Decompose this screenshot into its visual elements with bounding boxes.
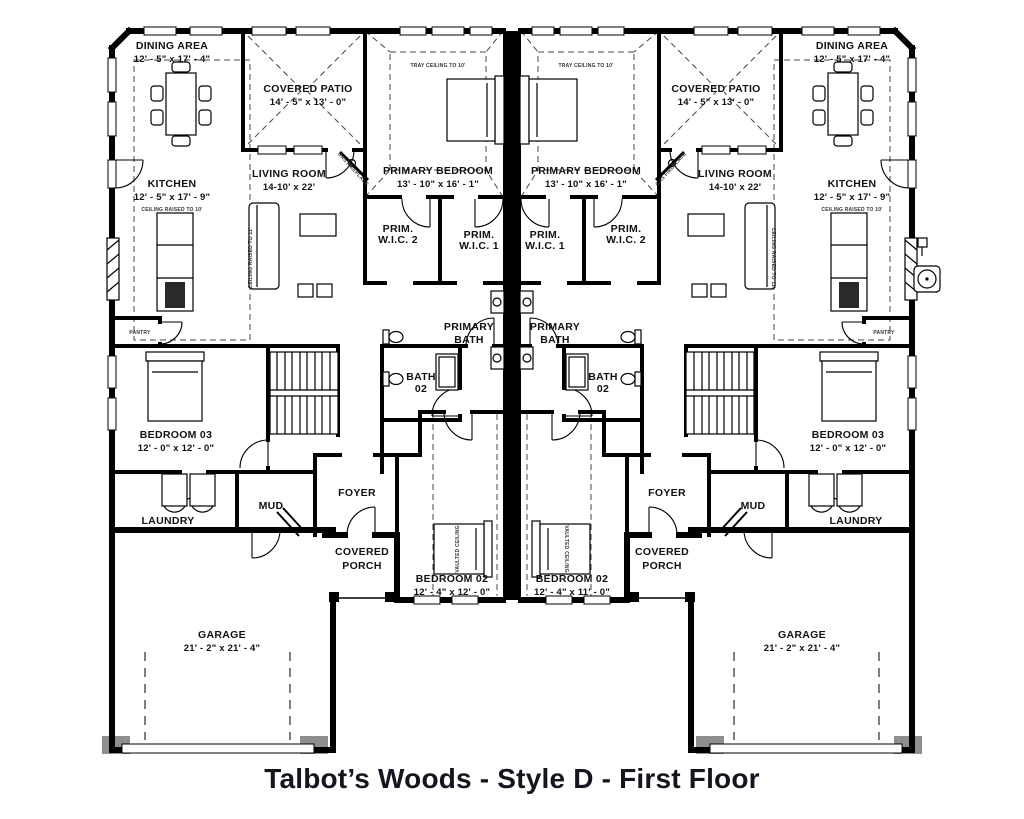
label-dining-name: DINING AREA xyxy=(816,40,888,52)
utility-meter-icon xyxy=(914,238,940,292)
label-dining-dims: 12' - 5" x 17' - 4" xyxy=(814,54,890,65)
label-living-name: LIVING ROOM xyxy=(698,168,772,180)
label-wic2-l2: W.I.C. 2 xyxy=(378,234,418,246)
dining-table-set xyxy=(151,62,211,146)
label-garage-name: GARAGE xyxy=(778,629,826,641)
label-garage-dims: 21' - 2" x 21' - 4" xyxy=(184,643,260,654)
label-bed03-dims: 12' - 0" x 12' - 0" xyxy=(810,443,886,454)
label-pbath-l2: BATH xyxy=(454,334,484,346)
label-porch-l2: PORCH xyxy=(342,560,381,572)
label-patio-dims: 14' - 5" x 13' - 0" xyxy=(678,97,754,108)
label-bed02-dims: 12' - 4" x 12' - 0" xyxy=(414,587,490,598)
label-bath02-l1: BATH xyxy=(588,371,618,383)
label-bed02-name: BEDROOM 02 xyxy=(536,573,608,585)
label-garage-dims: 21' - 2" x 21' - 4" xyxy=(764,643,840,654)
bedroom02-bed xyxy=(434,521,492,577)
primary-bed xyxy=(447,76,504,144)
label-pbath-l1: PRIMARY xyxy=(444,321,494,333)
label-wic1-l2: W.I.C. 1 xyxy=(459,240,499,252)
label-porch-l1: COVERED xyxy=(335,546,389,558)
bath-fixtures xyxy=(383,291,504,390)
label-patio-name: COVERED PATIO xyxy=(263,83,352,95)
stairs xyxy=(270,352,338,434)
porch-post xyxy=(329,592,339,602)
label-kitchen-name: KITCHEN xyxy=(148,178,197,190)
label-foyer: FOYER xyxy=(338,487,376,499)
label-kitchen-note: CEILING RAISED TO 10' xyxy=(141,207,202,213)
label-vaulted-note: VAULTED CEILING xyxy=(563,525,569,573)
label-tray-note: TRAY CEILING TO 10' xyxy=(411,63,466,69)
label-bed03-dims: 12' - 0" x 12' - 0" xyxy=(138,443,214,454)
label-bed03-name: BEDROOM 03 xyxy=(140,429,212,441)
label-mud: MUD xyxy=(741,500,766,512)
label-laundry: LAUNDRY xyxy=(141,515,194,527)
label-patio-dims: 14' - 5" x 13' - 0" xyxy=(270,97,346,108)
label-porch-l1: COVERED xyxy=(635,546,689,558)
right-unit-geometry xyxy=(512,27,922,754)
label-bed02-dims: 12' - 4" x 11' - 0" xyxy=(534,587,610,598)
label-wic1-l2: W.I.C. 1 xyxy=(525,240,565,252)
label-pbed-name: PRIMARY BEDROOM xyxy=(531,165,641,177)
garage-door xyxy=(122,652,314,753)
label-vaulted-note: VAULTED CEILING xyxy=(455,525,461,573)
label-bath02-l2: 02 xyxy=(415,383,427,395)
label-tray-note: TRAY CEILING TO 10' xyxy=(559,63,614,69)
floor-plan-page: DINING AREA 12' - 5" x 17' - 4" COVERED … xyxy=(0,0,1024,819)
label-kitchen-dims: 12' - 5" x 17' - 9" xyxy=(814,192,890,203)
label-bath02-l1: BATH xyxy=(406,371,436,383)
label-dining-name: DINING AREA xyxy=(136,40,208,52)
bedroom03-bed xyxy=(146,352,204,421)
label-laundry: LAUNDRY xyxy=(829,515,882,527)
label-ceiling-raised-note: CEILING RAISED TO 11' xyxy=(248,228,254,289)
label-patio-name: COVERED PATIO xyxy=(671,83,760,95)
label-bed02-name: BEDROOM 02 xyxy=(416,573,488,585)
label-pbath-l2: BATH xyxy=(540,334,570,346)
label-pantry: PANTRY xyxy=(129,330,151,336)
label-wic2-l2: W.I.C. 2 xyxy=(606,234,646,246)
label-garage-name: GARAGE xyxy=(198,629,246,641)
living-room-furniture xyxy=(249,203,336,297)
left-unit-geometry xyxy=(102,27,512,754)
label-pbed-name: PRIMARY BEDROOM xyxy=(383,165,493,177)
label-kitchen-dims: 12' - 5" x 17' - 9" xyxy=(134,192,210,203)
label-living-dims: 14-10' x 22' xyxy=(709,182,761,193)
label-ceiling-raised-note: CEILING RAISED TO 11' xyxy=(770,228,776,289)
label-kitchen-note: CEILING RAISED TO 10' xyxy=(821,207,882,213)
label-porch-l2: PORCH xyxy=(642,560,681,572)
label-mud: MUD xyxy=(259,500,284,512)
label-living-name: LIVING ROOM xyxy=(252,168,326,180)
laundry-appliances xyxy=(162,474,215,512)
label-bed03-name: BEDROOM 03 xyxy=(812,429,884,441)
label-bath02-l2: 02 xyxy=(597,383,609,395)
plan-title: Talbot’s Woods - Style D - First Floor xyxy=(264,763,760,794)
label-kitchen-name: KITCHEN xyxy=(828,178,877,190)
porch-post xyxy=(385,592,395,602)
label-living-dims: 14-10' x 22' xyxy=(263,182,315,193)
label-dining-dims: 12' - 5" x 17' - 4" xyxy=(134,54,210,65)
label-pbed-dims: 13' - 10" x 16' - 1" xyxy=(397,179,479,190)
kitchen-island xyxy=(107,213,193,311)
label-pantry: PANTRY xyxy=(873,330,895,336)
floor-plan-svg: DINING AREA 12' - 5" x 17' - 4" COVERED … xyxy=(0,0,1024,819)
label-pbed-dims: 13' - 10" x 16' - 1" xyxy=(545,179,627,190)
label-pbath-l1: PRIMARY xyxy=(530,321,580,333)
label-foyer: FOYER xyxy=(648,487,686,499)
